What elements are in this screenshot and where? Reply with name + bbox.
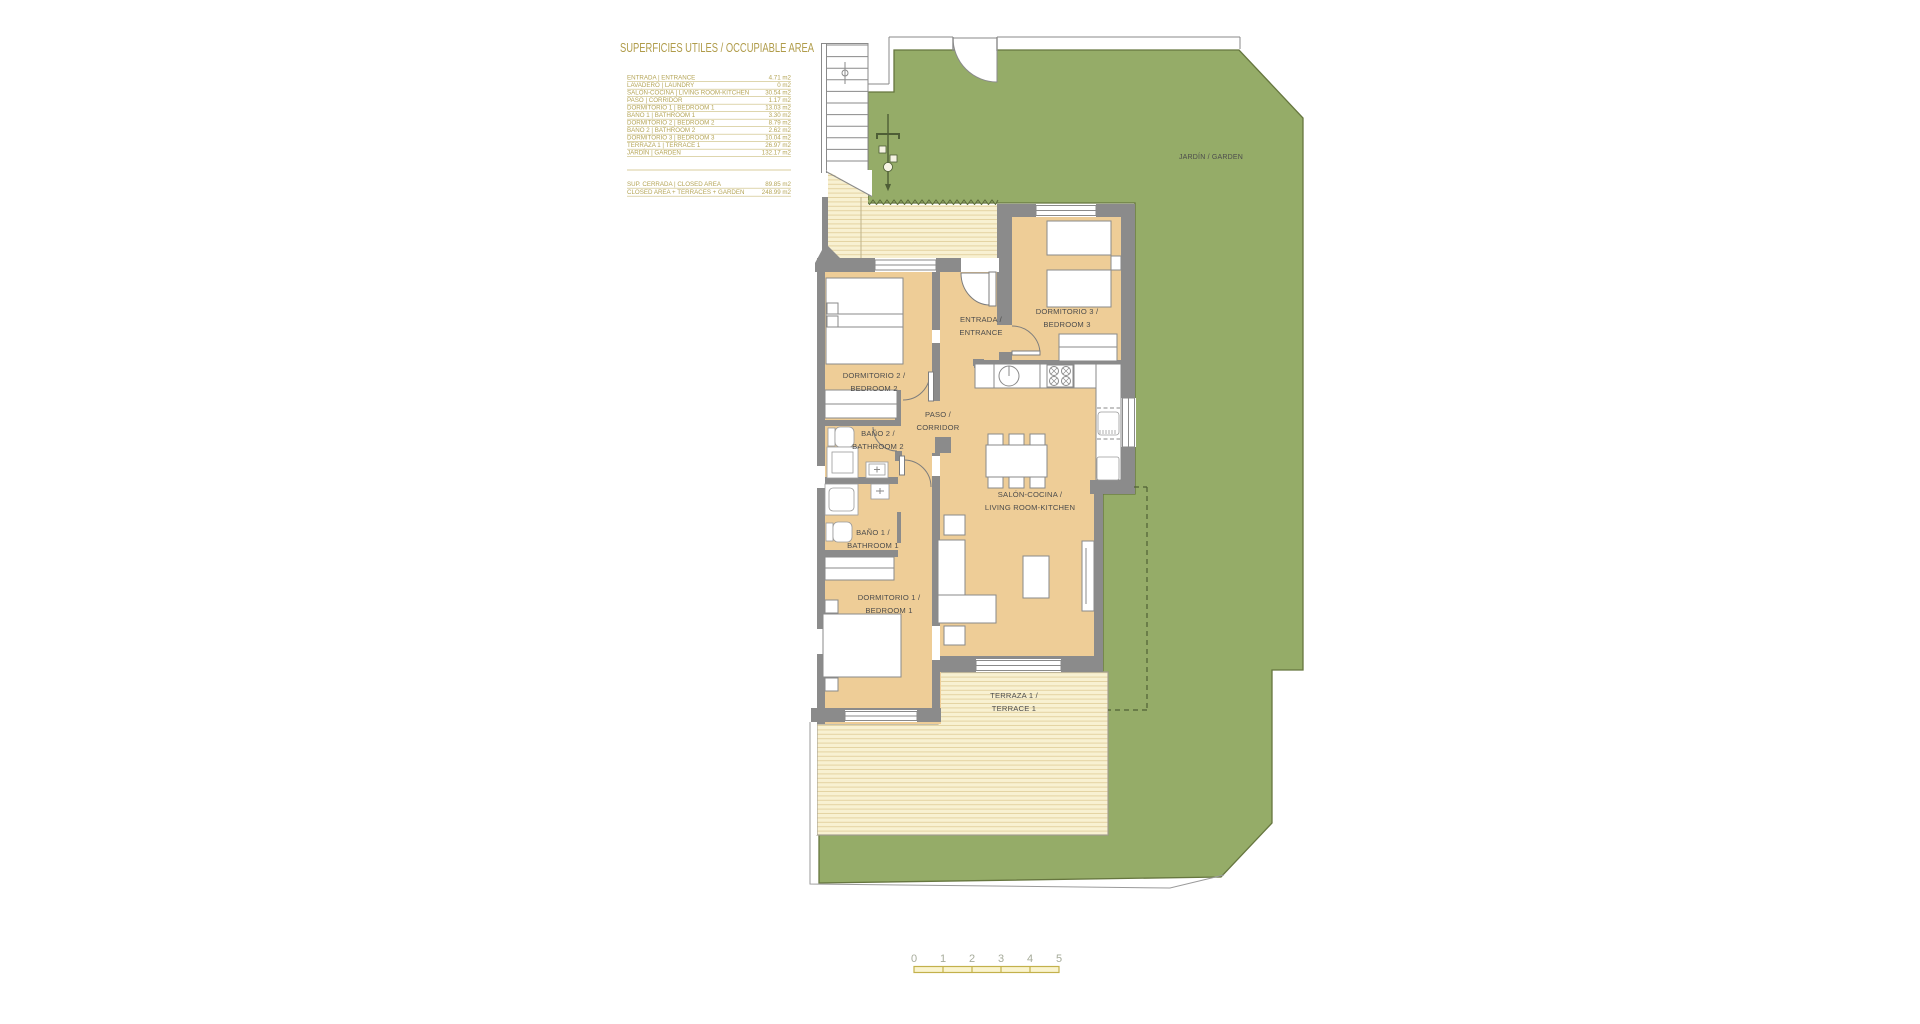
svg-text:DORMITORIO 2 | BEDROOM 2: DORMITORIO 2 | BEDROOM 2 — [627, 120, 715, 127]
svg-text:LAVADERO | LAUNDRY: LAVADERO | LAUNDRY — [627, 82, 694, 89]
svg-text:DORMITORIO 2 /: DORMITORIO 2 / — [843, 371, 906, 380]
svg-text:ENTRADA | ENTRANCE: ENTRADA | ENTRANCE — [627, 75, 695, 82]
svg-text:DORMITORIO 1 | BEDROOM 1: DORMITORIO 1 | BEDROOM 1 — [627, 105, 715, 112]
svg-text:10.04 m2: 10.04 m2 — [765, 135, 791, 142]
svg-text:BATHROOM 1: BATHROOM 1 — [847, 541, 899, 550]
svg-text:SUP. CERRADA | CLOSED AREA: SUP. CERRADA | CLOSED AREA — [627, 181, 722, 188]
svg-text:2: 2 — [969, 953, 975, 965]
svg-text:JARDÍN | GARDEN: JARDÍN | GARDEN — [627, 150, 681, 157]
svg-text:JARDÍN / GARDEN: JARDÍN / GARDEN — [1179, 152, 1243, 161]
svg-text:BAÑO 1 | BATHROOM 1: BAÑO 1 | BATHROOM 1 — [627, 112, 696, 119]
svg-text:8.79 m2: 8.79 m2 — [769, 120, 792, 127]
svg-text:2.62 m2: 2.62 m2 — [769, 127, 792, 134]
svg-text:89.85 m2: 89.85 m2 — [765, 181, 791, 188]
svg-text:LIVING ROOM-KITCHEN: LIVING ROOM-KITCHEN — [985, 503, 1075, 512]
svg-text:DORMITORIO 3 /: DORMITORIO 3 / — [1036, 307, 1099, 316]
svg-text:SALÓN-COCINA | LIVING ROOM-KIT: SALÓN-COCINA | LIVING ROOM-KITCHEN — [627, 90, 749, 97]
svg-text:3: 3 — [998, 953, 1004, 965]
svg-text:CLOSED AREA + TERRACES + GARDE: CLOSED AREA + TERRACES + GARDEN — [627, 189, 745, 196]
svg-text:248.99 m2: 248.99 m2 — [762, 189, 792, 196]
svg-text:BAÑO 2 /: BAÑO 2 / — [861, 429, 895, 438]
svg-text:PASO /: PASO / — [925, 410, 952, 419]
svg-text:SALÓN-COCINA /: SALÓN-COCINA / — [998, 490, 1063, 499]
svg-text:13.03 m2: 13.03 m2 — [765, 105, 791, 112]
svg-text:BATHROOM 2: BATHROOM 2 — [852, 442, 904, 451]
svg-text:DORMITORIO 1 /: DORMITORIO 1 / — [858, 593, 921, 602]
svg-text:4: 4 — [1027, 953, 1033, 965]
svg-text:ENTRANCE: ENTRANCE — [959, 328, 1002, 337]
svg-text:1.17 m2: 1.17 m2 — [769, 97, 792, 104]
svg-text:TERRACE 1: TERRACE 1 — [992, 704, 1036, 713]
svg-text:132.17 m2: 132.17 m2 — [762, 150, 792, 157]
svg-text:CORRIDOR: CORRIDOR — [917, 423, 960, 432]
svg-text:BEDROOM 2: BEDROOM 2 — [850, 384, 897, 393]
svg-text:SUPERFICIES UTILES / OCCUPIABL: SUPERFICIES UTILES / OCCUPIABLE AREA — [620, 41, 814, 55]
svg-text:BEDROOM 1: BEDROOM 1 — [865, 606, 912, 615]
svg-text:TERRAZA 1 | TERRACE 1: TERRAZA 1 | TERRACE 1 — [627, 142, 701, 149]
svg-text:BAÑO 2 | BATHROOM 2: BAÑO 2 | BATHROOM 2 — [627, 127, 696, 134]
svg-text:0: 0 — [911, 953, 917, 965]
svg-text:26.97 m2: 26.97 m2 — [765, 142, 791, 149]
svg-text:4.71 m2: 4.71 m2 — [769, 75, 792, 82]
svg-text:BAÑO 1 /: BAÑO 1 / — [856, 528, 890, 537]
svg-text:TERRAZA 1 /: TERRAZA 1 / — [990, 691, 1038, 700]
svg-text:5: 5 — [1056, 953, 1062, 965]
svg-text:30.54 m2: 30.54 m2 — [765, 90, 791, 97]
svg-text:3.30 m2: 3.30 m2 — [769, 112, 792, 119]
svg-text:ENTRADA /: ENTRADA / — [960, 315, 1003, 324]
svg-text:PASO | CORRIDOR: PASO | CORRIDOR — [627, 97, 683, 104]
svg-text:1: 1 — [940, 953, 946, 965]
svg-text:DORMITORIO 3 | BEDROOM 3: DORMITORIO 3 | BEDROOM 3 — [627, 135, 715, 142]
svg-text:BEDROOM 3: BEDROOM 3 — [1043, 320, 1090, 329]
svg-text:0 m2: 0 m2 — [777, 82, 791, 89]
